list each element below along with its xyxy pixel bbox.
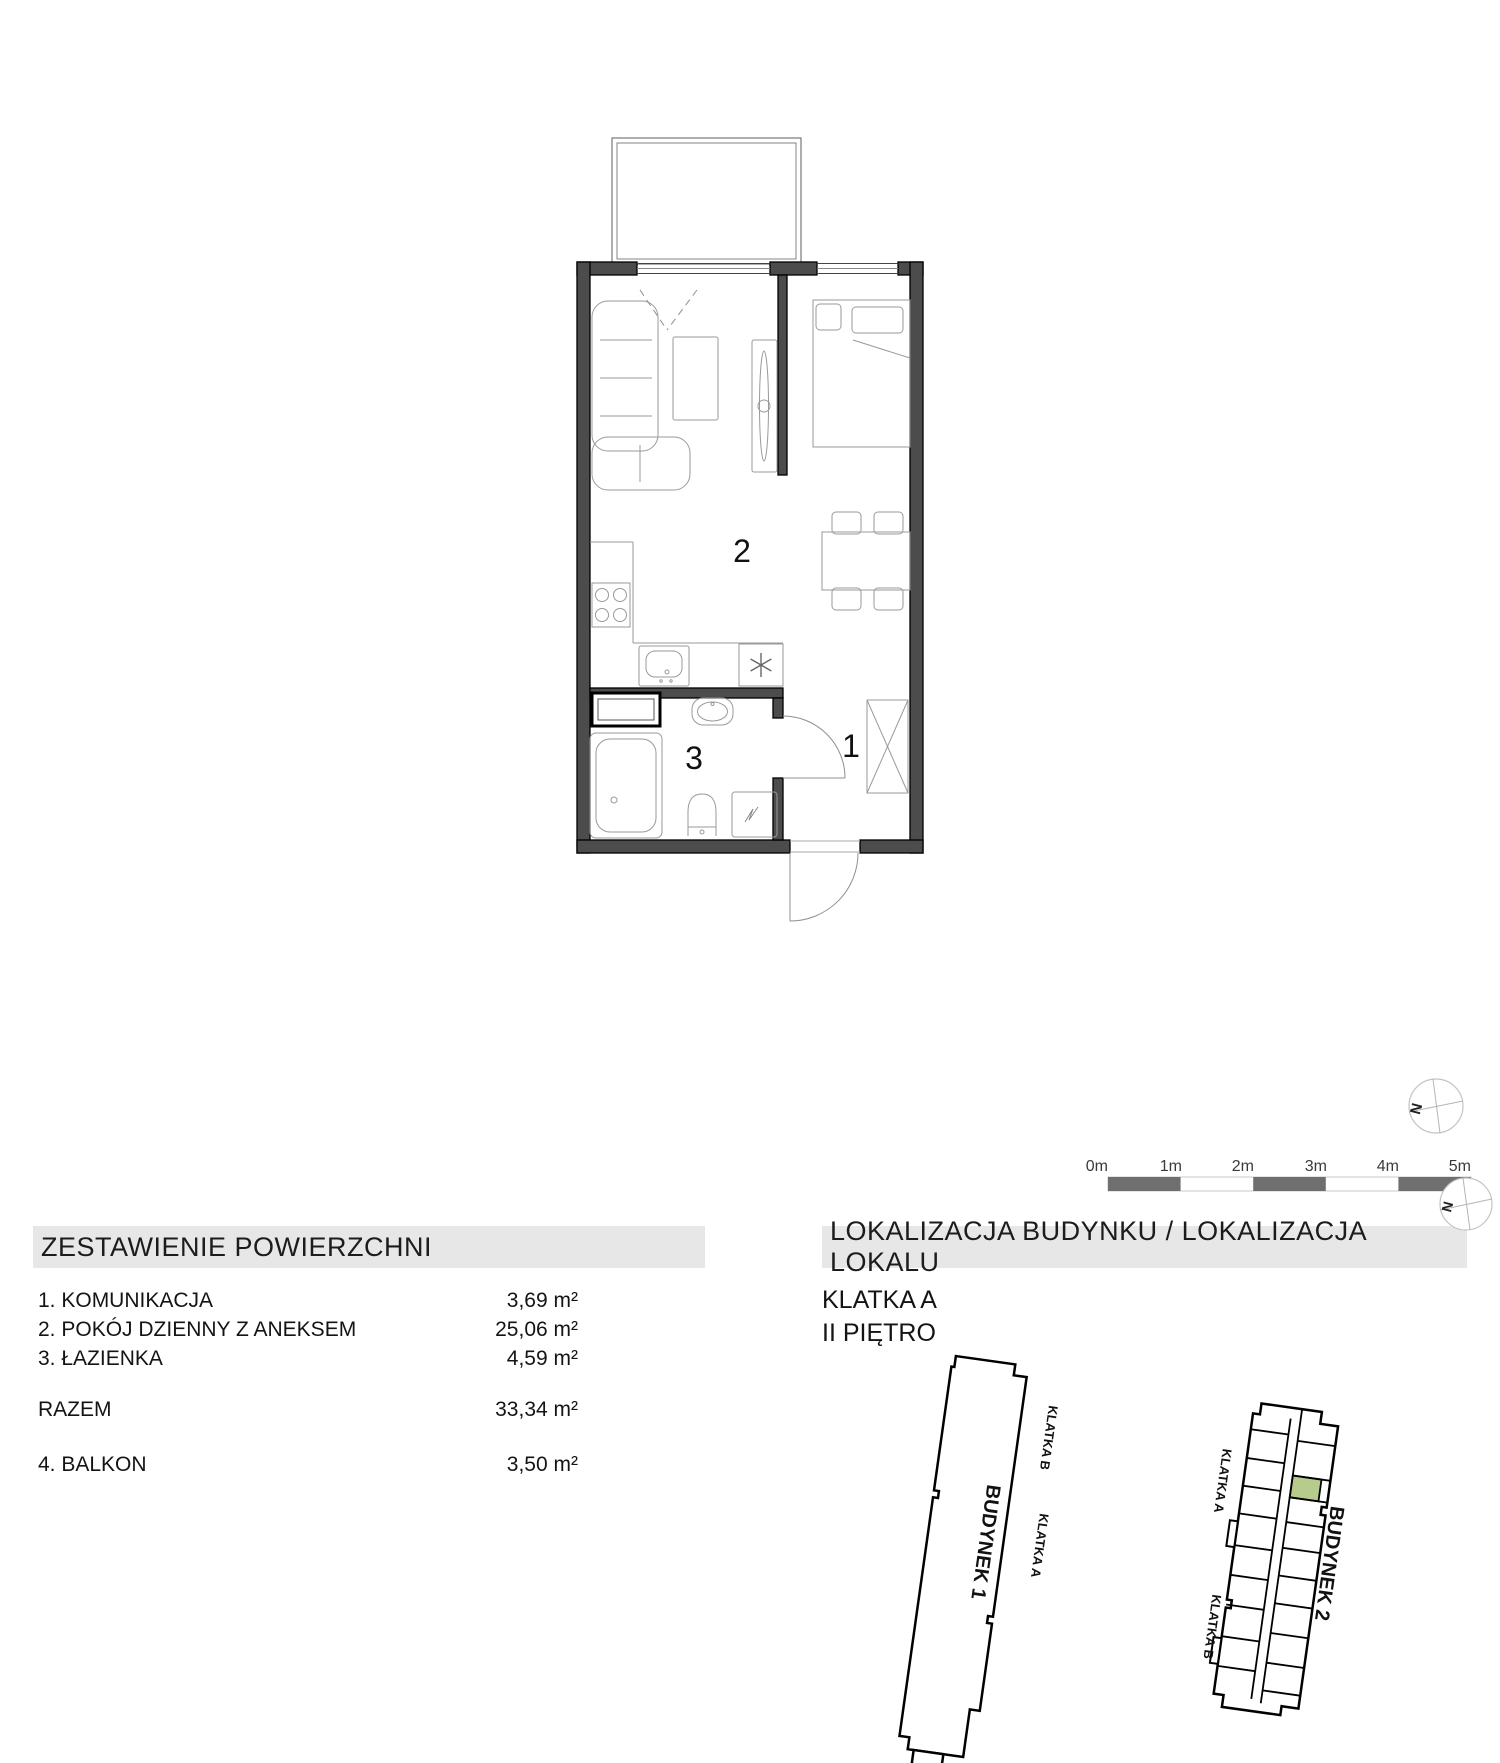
- building-2-klatka-a: KLATKA A: [1211, 1448, 1235, 1515]
- bathroom-door: [783, 716, 845, 778]
- apartment-plan: 1 2 3: [577, 138, 923, 921]
- room-numbers: 1 2 3: [685, 533, 860, 776]
- fridge-icon: [739, 644, 783, 686]
- room-label: 3. ŁAZIENKA: [38, 1344, 163, 1373]
- coffee-table-icon: [673, 337, 718, 420]
- balcony-door-swing: [640, 290, 697, 330]
- highlighted-unit: [1290, 1476, 1322, 1502]
- doors: [640, 290, 860, 921]
- room-area: 4,59 m²: [507, 1344, 578, 1373]
- building-1-klatka-a: KLATKA A: [1028, 1513, 1052, 1580]
- toilet-icon: [688, 794, 716, 836]
- table-row-total: RAZEM 33,34 m²: [38, 1395, 578, 1424]
- bathtub-icon: [590, 733, 662, 838]
- shaft: [592, 693, 660, 726]
- staircase-label: KLATKA A: [822, 1284, 937, 1317]
- tv-panel-icon: [752, 340, 777, 472]
- location-header-label: LOKALIZACJA BUDYNKU / LOKALIZACJA LOKALU: [830, 1216, 1467, 1278]
- floorplan-sheet: ZESTAWIENIE POWIERZCHNI LOKALIZACJA BUDY…: [0, 0, 1500, 1763]
- washbasin-icon: [692, 698, 733, 725]
- building-2-klatka-b: KLATKA B: [1200, 1594, 1224, 1660]
- room-label: 2. POKÓJ DZIENNY Z ANEKSEM: [38, 1315, 356, 1344]
- building-1: BUDYNEK 1 KLATKA B KLATKA A: [896, 1356, 1072, 1763]
- building-1-klatka-b: KLATKA B: [1037, 1405, 1061, 1471]
- location-header: LOKALIZACJA BUDYNKU / LOKALIZACJA LOKALU: [822, 1226, 1467, 1268]
- wardrobe-icon: [867, 700, 908, 793]
- table-row: 2. POKÓJ DZIENNY Z ANEKSEM 25,06 m²: [38, 1315, 578, 1344]
- floor-label: II PIĘTRO: [822, 1317, 937, 1350]
- bed-icon: [813, 300, 910, 447]
- kitchen-counter: [590, 542, 783, 643]
- balcony-label: 4. BALKON: [38, 1450, 147, 1479]
- building-1-label: BUDYNEK 1: [966, 1483, 1004, 1601]
- room-area: 3,69 m²: [507, 1286, 578, 1315]
- scale-label: 1m: [1160, 1158, 1182, 1175]
- room-area: 25,06 m²: [495, 1315, 578, 1344]
- furniture: [590, 300, 910, 838]
- table-row-balcony: 4. BALKON 3,50 m²: [38, 1450, 578, 1479]
- total-label: RAZEM: [38, 1395, 112, 1424]
- dining-set-icon: [822, 512, 910, 610]
- north-label: N: [1438, 1200, 1456, 1214]
- stove-icon: [592, 583, 630, 627]
- table-row: 3. ŁAZIENKA 4,59 m²: [38, 1344, 578, 1373]
- table-row: 1. KOMUNIKACJA 3,69 m²: [38, 1286, 578, 1315]
- plan-drawing: 1 2 3 N 0m 1m 2m 3m 4m: [0, 0, 1500, 1763]
- room-number-hall: 1: [842, 728, 860, 764]
- scale-label: 0m: [1086, 1158, 1108, 1175]
- sofa-icon: [592, 301, 690, 490]
- building-2: BUDYNEK 2 KLATKA A KLATKA B: [1184, 1399, 1360, 1721]
- room-number-living: 2: [733, 533, 751, 569]
- scale-label: 4m: [1377, 1158, 1399, 1175]
- building-2-label: BUDYNEK 2: [1310, 1505, 1348, 1623]
- entrance-door: [790, 853, 858, 921]
- location-info: KLATKA A II PIĘTRO: [822, 1284, 937, 1350]
- entrance-threshold: [790, 841, 860, 852]
- area-summary-header: ZESTAWIENIE POWIERZCHNI: [33, 1226, 705, 1268]
- windows: [637, 264, 898, 274]
- scale-label: 5m: [1449, 1158, 1471, 1175]
- scale-label: 3m: [1305, 1158, 1327, 1175]
- scale-bar: 0m 1m 2m 3m 4m 5m: [1086, 1158, 1471, 1191]
- scale-label: 2m: [1232, 1158, 1254, 1175]
- area-table: 1. KOMUNIKACJA 3,69 m² 2. POKÓJ DZIENNY …: [38, 1286, 578, 1479]
- washing-machine-icon: [732, 792, 777, 837]
- kitchen-sink-icon: [639, 646, 689, 686]
- area-summary-header-label: ZESTAWIENIE POWIERZCHNI: [41, 1232, 432, 1263]
- room-label: 1. KOMUNIKACJA: [38, 1286, 213, 1315]
- balcony-outline: [612, 138, 801, 264]
- north-label: N: [1407, 1101, 1426, 1116]
- balcony-area: 3,50 m²: [507, 1450, 578, 1479]
- compass-icon: N: [1407, 1079, 1463, 1133]
- walls: [577, 262, 923, 853]
- total-area: 33,34 m²: [495, 1395, 578, 1424]
- room-number-bath: 3: [685, 740, 703, 776]
